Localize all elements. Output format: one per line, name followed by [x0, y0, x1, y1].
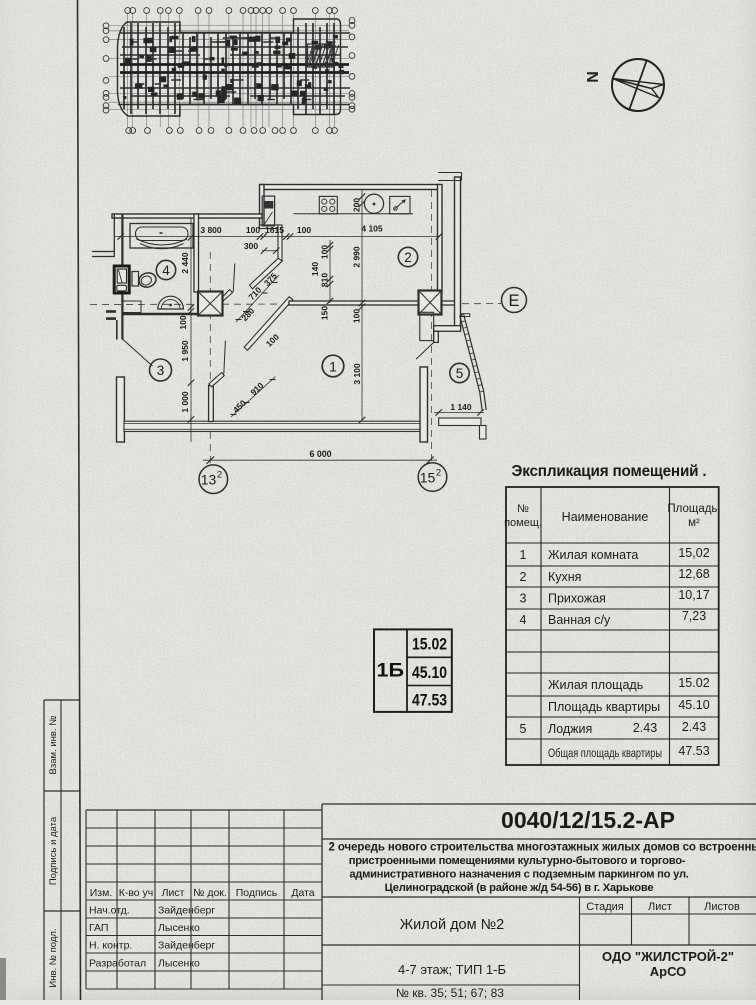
- svg-text:5: 5: [520, 722, 527, 736]
- svg-text:3: 3: [157, 363, 165, 378]
- svg-text:м²: м²: [688, 517, 700, 529]
- svg-text:13: 13: [201, 472, 217, 488]
- svg-text:12,68: 12,68: [678, 567, 709, 581]
- svg-text:3 800: 3 800: [200, 225, 222, 235]
- svg-text:Лоджия: Лоджия: [548, 722, 592, 736]
- svg-text:Жилая комната: Жилая комната: [548, 548, 638, 562]
- svg-text:Прихожая: Прихожая: [548, 592, 606, 606]
- svg-text:2: 2: [404, 250, 412, 265]
- svg-text:2.43: 2.43: [633, 721, 657, 735]
- svg-text:6 000: 6 000: [309, 449, 331, 459]
- svg-text:2 очередь нового строительства: 2 очередь нового строительства многоэтаж…: [329, 842, 756, 854]
- svg-text:Кухня: Кухня: [548, 570, 581, 584]
- svg-text:15.02: 15.02: [678, 676, 709, 690]
- svg-text:2: 2: [520, 570, 527, 584]
- svg-text:15,02: 15,02: [678, 546, 709, 560]
- svg-text:5: 5: [456, 366, 464, 381]
- svg-text:№ кв. 35; 51; 67; 83: № кв. 35; 51; 67; 83: [396, 986, 504, 1000]
- svg-text:Экспликация помещений .: Экспликация помещений .: [512, 463, 707, 480]
- svg-text:10,17: 10,17: [678, 588, 709, 602]
- svg-text:Изм.: Изм.: [90, 887, 113, 899]
- svg-text:150: 150: [320, 306, 330, 320]
- svg-text:2.43: 2.43: [682, 720, 706, 734]
- svg-text:Целиноградской (в районе ж/д 5: Целиноградской (в районе ж/д 54-56) в г.…: [385, 882, 654, 894]
- svg-text:140: 140: [310, 262, 320, 276]
- svg-text:Лысенко: Лысенко: [158, 958, 200, 970]
- svg-text:3: 3: [520, 592, 527, 606]
- svg-text:100: 100: [352, 309, 362, 323]
- svg-text:Стадия: Стадия: [586, 901, 624, 913]
- svg-text:1 140: 1 140: [450, 402, 472, 412]
- svg-text:4: 4: [162, 263, 170, 278]
- svg-text:2 990: 2 990: [352, 246, 362, 268]
- svg-text:4: 4: [520, 613, 527, 627]
- svg-text:№ док.: № док.: [193, 887, 227, 899]
- svg-text:К-во уч: К-во уч: [119, 887, 154, 899]
- svg-text:15: 15: [420, 470, 436, 486]
- svg-text:1: 1: [520, 548, 527, 562]
- svg-text:пристроенными помещениями куль: пристроенными помещениями культурно-быто…: [349, 855, 686, 867]
- svg-text:Ванная с/у: Ванная с/у: [548, 613, 611, 627]
- svg-text:100: 100: [246, 225, 260, 235]
- svg-text:100: 100: [297, 225, 311, 235]
- svg-text:Инв. № подл.: Инв. № подл.: [48, 928, 59, 987]
- svg-text:Лист: Лист: [162, 887, 185, 899]
- svg-text:Подпись: Подпись: [236, 887, 278, 899]
- svg-text:Жилая площадь: Жилая площадь: [548, 678, 643, 692]
- svg-text:7,23: 7,23: [682, 609, 706, 623]
- svg-text:100: 100: [320, 245, 330, 259]
- svg-text:Жилой дом №2: Жилой дом №2: [400, 917, 504, 933]
- svg-text:2: 2: [217, 470, 222, 481]
- svg-text:15.02: 15.02: [412, 636, 447, 654]
- svg-text:Зайденберг: Зайденберг: [158, 940, 215, 952]
- svg-text:Лысенко: Лысенко: [158, 922, 200, 934]
- svg-text:100: 100: [178, 315, 188, 329]
- svg-text:47.53: 47.53: [678, 744, 709, 758]
- svg-text:Зайденберг: Зайденберг: [158, 905, 215, 917]
- svg-text:2 440: 2 440: [180, 252, 190, 274]
- svg-text:47.53: 47.53: [412, 692, 447, 710]
- svg-text:4 105: 4 105: [361, 224, 383, 234]
- svg-text:Лист: Лист: [648, 901, 672, 913]
- svg-text:3 100: 3 100: [352, 363, 362, 385]
- svg-text:Разработал: Разработал: [89, 958, 146, 970]
- svg-text:Наименование: Наименование: [562, 510, 649, 524]
- svg-text:Площадь квартиры: Площадь квартиры: [548, 700, 660, 714]
- svg-text:4-7 этаж; ТИП 1-Б: 4-7 этаж; ТИП 1-Б: [398, 962, 506, 977]
- svg-text:N: N: [585, 71, 602, 83]
- svg-text:45.10: 45.10: [678, 698, 709, 712]
- svg-text:Подпись и дата: Подпись и дата: [48, 816, 59, 885]
- svg-text:1Б: 1Б: [377, 660, 405, 682]
- svg-text:Площадь,: Площадь,: [667, 503, 720, 515]
- svg-text:АрСО: АрСО: [650, 964, 687, 979]
- svg-text:№: №: [517, 503, 529, 515]
- svg-text:Дата: Дата: [291, 887, 314, 899]
- svg-text:помещ.: помещ.: [504, 517, 542, 529]
- svg-text:ОДО "ЖИЛСТРОЙ-2": ОДО "ЖИЛСТРОЙ-2": [602, 949, 734, 964]
- svg-text:1 950: 1 950: [180, 340, 190, 362]
- svg-text:Листов: Листов: [704, 901, 740, 913]
- svg-text:Общая площадь квартиры: Общая площадь квартиры: [548, 746, 662, 760]
- svg-text:Н. контр.: Н. контр.: [89, 940, 132, 952]
- svg-text:0040/12/15.2-АР: 0040/12/15.2-АР: [501, 807, 675, 833]
- svg-text:45.10: 45.10: [412, 664, 447, 682]
- svg-text:810: 810: [320, 273, 330, 287]
- svg-text:2: 2: [436, 468, 441, 479]
- svg-text:Нач.отд.: Нач.отд.: [89, 905, 130, 917]
- svg-text:1: 1: [329, 359, 337, 375]
- svg-text:300: 300: [244, 241, 258, 251]
- svg-text:административного назначения с: административного назначения с подземным…: [349, 869, 688, 881]
- svg-text:E: E: [508, 292, 519, 310]
- svg-text:1 000: 1 000: [180, 391, 190, 413]
- svg-text:200: 200: [352, 198, 362, 212]
- svg-text:Взам. инв. №: Взам. инв. №: [48, 716, 59, 775]
- svg-text:1615: 1615: [265, 225, 284, 235]
- svg-text:ГАП: ГАП: [89, 922, 108, 934]
